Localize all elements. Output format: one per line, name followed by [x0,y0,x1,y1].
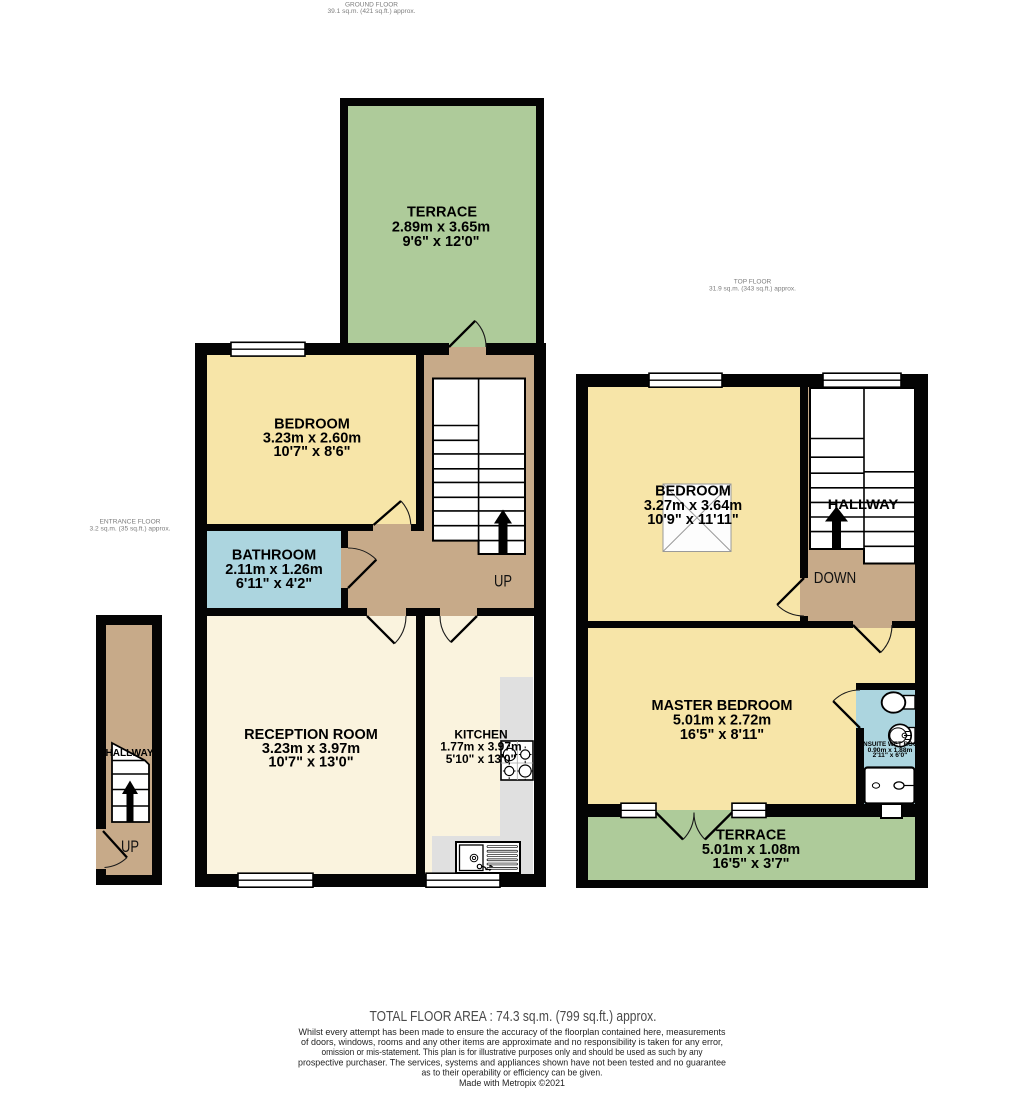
svg-text:HALLWAY: HALLWAY [106,748,154,759]
svg-text:DOWN: DOWN [814,570,857,587]
svg-text:HALLWAY: HALLWAY [828,496,899,512]
svg-text:as to their operability or eff: as to their operability or efficiency ca… [422,1067,603,1077]
svg-text:Made with Metropix ©2021: Made with Metropix ©2021 [459,1078,565,1088]
svg-text:2'11" x 6'0": 2'11" x 6'0" [873,752,908,759]
svg-text:39.1 sq.m. (421 sq.ft.) approx: 39.1 sq.m. (421 sq.ft.) approx. [328,8,416,15]
svg-text:TOP FLOOR: TOP FLOOR [734,279,772,286]
svg-text:16'5" x 8'11": 16'5" x 8'11" [680,727,764,743]
svg-text:of doors, windows, rooms and a: of doors, windows, rooms and any other i… [301,1037,723,1047]
svg-text:ENTRANCE FLOOR: ENTRANCE FLOOR [100,518,162,525]
svg-text:6'11" x 4'2": 6'11" x 4'2" [236,576,312,592]
svg-text:omission or mis-statement. Thi: omission or mis-statement. This plan is … [322,1047,703,1057]
svg-text:10'7" x 8'6": 10'7" x 8'6" [273,444,350,460]
svg-text:9'6" x 12'0": 9'6" x 12'0" [402,234,479,250]
svg-text:16'5" x 3'7": 16'5" x 3'7" [712,856,789,872]
svg-text:UP: UP [494,571,512,590]
svg-text:31.9 sq.m. (343 sq.ft.) approx: 31.9 sq.m. (343 sq.ft.) approx. [709,286,796,293]
svg-text:5'10" x 13'0": 5'10" x 13'0" [446,752,516,766]
svg-text:TOTAL FLOOR AREA : 74.3 sq.m.: TOTAL FLOOR AREA : 74.3 sq.m. (799 sq.ft… [370,1008,657,1025]
svg-text:10'7" x 13'0": 10'7" x 13'0" [268,755,353,771]
svg-text:TERRACE: TERRACE [407,205,477,221]
svg-text:prospective purchaser. The ser: prospective purchaser. The services, sys… [298,1057,726,1067]
svg-text:10'9" x 11'11": 10'9" x 11'11" [647,512,739,528]
svg-text:3.2 sq.m. (35 sq.ft.) approx.: 3.2 sq.m. (35 sq.ft.) approx. [90,526,171,533]
svg-text:Whilst every attempt has been: Whilst every attempt has been made to en… [299,1027,726,1037]
